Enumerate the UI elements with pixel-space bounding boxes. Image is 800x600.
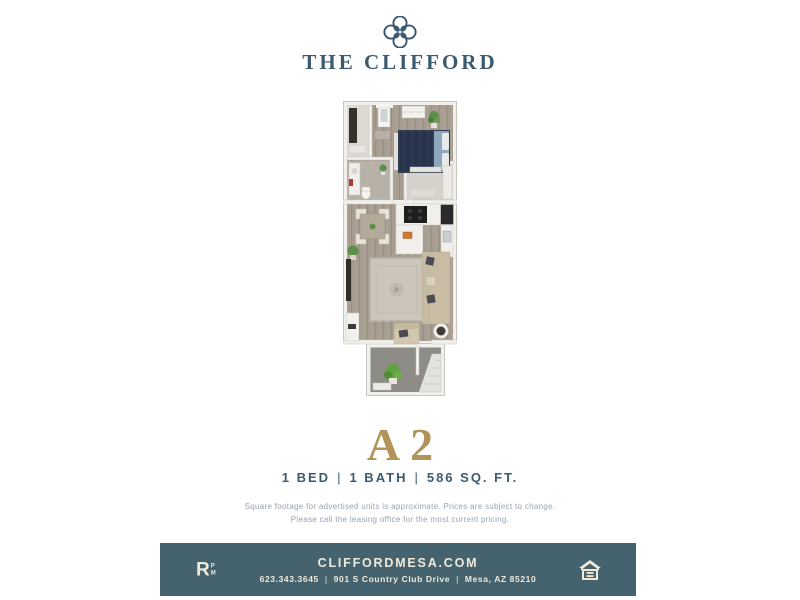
quatrefoil-icon — [383, 16, 417, 48]
phone-number: 623.343.3645 — [260, 574, 319, 584]
equal-housing-icon — [578, 559, 602, 581]
floorplan-dining — [356, 209, 389, 244]
contact-separator: | — [456, 574, 459, 584]
spec-sqft: 586 SQ. FT. — [427, 470, 518, 485]
spec-separator: | — [414, 470, 419, 485]
flyer-page: THE CLIFFORD — [0, 0, 800, 600]
unit-name: A2 — [0, 418, 800, 471]
contact-line: 623.343.3645|901 S Country Club Drive|Me… — [260, 574, 537, 584]
contact-separator: | — [325, 574, 328, 584]
brand-title: THE CLIFFORD — [0, 50, 800, 75]
disclaimer-line-1: Square footage for advertised units is a… — [0, 501, 800, 514]
spec-bath: 1 BATH — [349, 470, 407, 485]
city-state-zip: Mesa, AZ 85210 — [465, 574, 536, 584]
floorplan-image — [343, 101, 457, 397]
disclaimer-text: Square footage for advertised units is a… — [0, 501, 800, 527]
disclaimer-line-2: Please call the leasing office for the m… — [0, 514, 800, 527]
unit-specs: 1 BED|1 BATH|586 SQ. FT. — [0, 470, 800, 485]
website-text: CLIFFORDMESA.COM — [318, 556, 479, 570]
footer-bar: R P M CLIFFORDMESA.COM 623.343.3645|901 … — [160, 543, 636, 596]
street-address: 901 S Country Club Drive — [334, 574, 450, 584]
spec-separator: | — [337, 470, 342, 485]
spec-bed: 1 BED — [282, 470, 330, 485]
footer-contact-block: CLIFFORDMESA.COM 623.343.3645|901 S Coun… — [160, 543, 636, 596]
